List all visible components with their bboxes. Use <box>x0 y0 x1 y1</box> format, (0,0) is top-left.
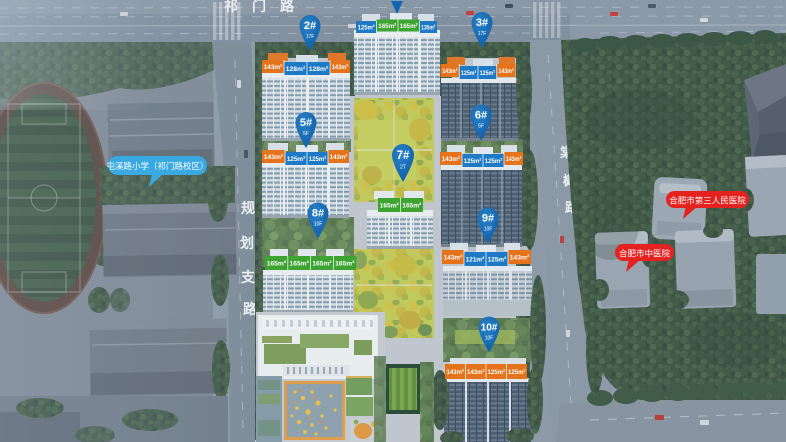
svg-text:165m²: 165m² <box>290 261 310 268</box>
svg-text:125m²: 125m² <box>461 70 477 77</box>
svg-text:143m²: 143m² <box>467 369 485 376</box>
svg-text:125m²: 125m² <box>488 369 506 376</box>
svg-text:2T: 2T <box>400 165 406 171</box>
svg-text:143m²: 143m² <box>499 68 515 75</box>
svg-text:135m²: 135m² <box>421 25 436 32</box>
svg-text:125m²: 125m² <box>488 257 507 264</box>
svg-text:165m²: 165m² <box>267 261 287 268</box>
svg-text:合肥市第三人民医院: 合肥市第三人民医院 <box>669 196 746 206</box>
svg-text:165m²: 165m² <box>402 203 422 210</box>
svg-text:125m²: 125m² <box>480 70 496 77</box>
svg-text:合肥市中医院: 合肥市中医院 <box>619 249 671 259</box>
svg-text:5F: 5F <box>303 131 309 137</box>
svg-text:143m²: 143m² <box>330 154 348 161</box>
svg-text:143m²: 143m² <box>332 64 349 71</box>
svg-text:125m²: 125m² <box>287 156 306 163</box>
svg-text:10F: 10F <box>484 227 493 233</box>
svg-text:165m²: 165m² <box>380 203 400 210</box>
svg-text:121m²: 121m² <box>466 257 485 264</box>
svg-text:125m²: 125m² <box>464 158 482 165</box>
svg-text:143m²: 143m² <box>442 68 458 75</box>
svg-text:10F: 10F <box>314 222 323 228</box>
svg-text:165m²: 165m² <box>312 261 332 268</box>
svg-text:屯溪路小学（祁门路校区）: 屯溪路小学（祁门路校区） <box>106 161 208 171</box>
svg-text:10#: 10# <box>481 323 498 334</box>
svg-text:128m²: 128m² <box>309 66 329 73</box>
svg-text:125m²: 125m² <box>309 156 327 163</box>
svg-text:10F: 10F <box>485 336 494 342</box>
svg-text:17F: 17F <box>478 31 487 37</box>
svg-text:143m²: 143m² <box>264 154 284 161</box>
svg-text:125m²: 125m² <box>485 158 503 165</box>
svg-text:8#: 8# <box>312 208 324 220</box>
svg-text:125m²: 125m² <box>358 25 376 32</box>
svg-text:143m²: 143m² <box>444 255 463 262</box>
svg-text:143m²: 143m² <box>506 156 522 163</box>
svg-text:6#: 6# <box>475 110 487 122</box>
svg-text:7#: 7# <box>397 150 410 162</box>
svg-text:3#: 3# <box>476 17 488 29</box>
svg-text:143m²: 143m² <box>442 156 461 163</box>
svg-text:5#: 5# <box>300 117 312 129</box>
svg-text:5F: 5F <box>478 124 484 130</box>
svg-text:9#: 9# <box>482 213 494 225</box>
svg-text:143m²: 143m² <box>447 369 465 376</box>
svg-text:128m²: 128m² <box>286 66 306 73</box>
svg-text:165m²: 165m² <box>378 23 397 30</box>
svg-text:2#: 2# <box>304 20 316 32</box>
svg-text:17F: 17F <box>306 34 315 40</box>
svg-text:143m²: 143m² <box>264 64 283 71</box>
svg-text:165m²: 165m² <box>335 261 355 268</box>
svg-text:165m²: 165m² <box>400 23 419 30</box>
svg-text:125m²: 125m² <box>508 369 526 376</box>
svg-text:143m²: 143m² <box>510 255 530 262</box>
